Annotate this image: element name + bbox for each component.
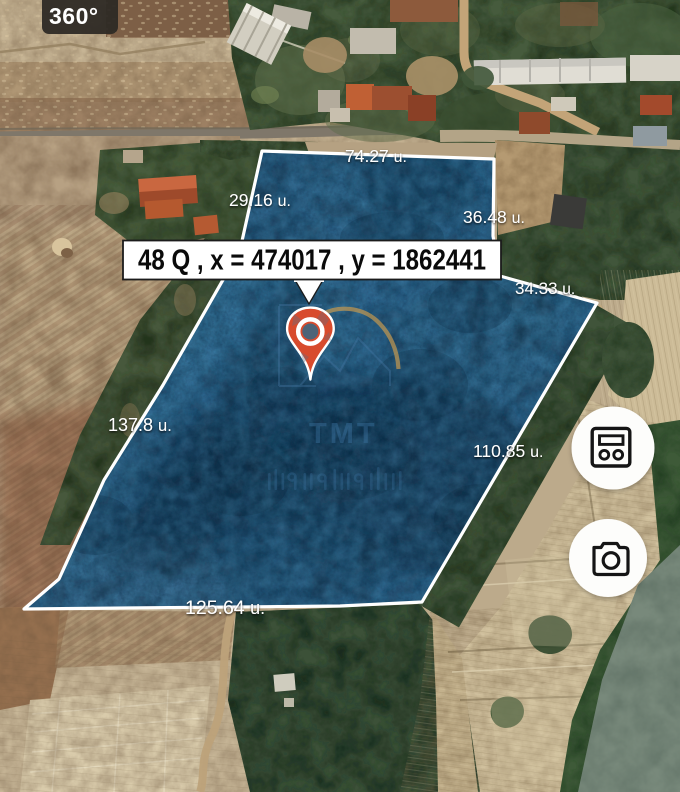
svg-text:36.48 u.: 36.48 u. xyxy=(463,207,525,227)
svg-text:125.64 u.: 125.64 u. xyxy=(185,597,265,619)
svg-text:110.85 u.: 110.85 u. xyxy=(473,441,543,461)
svg-text:29.16 u.: 29.16 u. xyxy=(229,190,291,210)
svg-text:34.33 u.: 34.33 u. xyxy=(515,279,575,298)
svg-text:74.27 u.: 74.27 u. xyxy=(345,146,407,166)
svg-text:TMT: TMT xyxy=(309,418,378,450)
svg-text:360°: 360° xyxy=(49,3,99,29)
svg-text:48 Q , x = 474017 , y = 186244: 48 Q , x = 474017 , y = 1862441 xyxy=(138,245,486,277)
svg-text:137.8 u.: 137.8 u. xyxy=(108,415,172,435)
